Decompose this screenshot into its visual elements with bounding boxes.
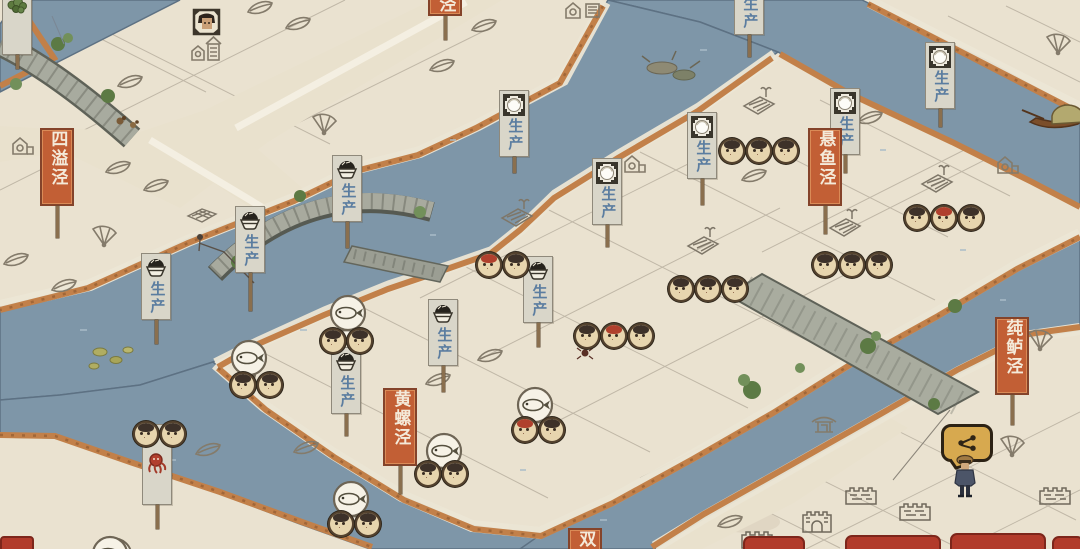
villager-coin-cluster [904, 205, 985, 231]
share-route-icon [957, 435, 977, 451]
villager-portrait-coin[interactable] [722, 276, 748, 302]
banner-pole [824, 206, 827, 234]
villager-coin-cluster [328, 511, 382, 537]
villager-portrait-coin[interactable] [719, 138, 745, 164]
production-label: 生产 [741, 0, 758, 30]
place-banner-label: 四溢泾 [48, 130, 67, 187]
villager-portrait-coin[interactable] [476, 252, 502, 278]
villager-coin-cluster [476, 252, 530, 278]
production-banner[interactable]: 生产 [331, 347, 361, 436]
silk-cocoon-icon [691, 116, 713, 138]
vegetable-banner[interactable] [2, 0, 32, 69]
banner-pole [1011, 395, 1014, 425]
place-banner-label: 悬鱼泾 [816, 130, 835, 187]
place-banner-partial-bottom[interactable]: 双 [568, 528, 602, 549]
production-banner[interactable]: 生产 [235, 206, 265, 311]
villager-portrait-coin[interactable] [442, 461, 468, 487]
villager-portrait-coin[interactable] [415, 461, 441, 487]
red-roof-partial [0, 536, 34, 549]
production-label: 生产 [242, 234, 259, 268]
food-bowl-icon [432, 303, 454, 325]
villager-portrait-coin[interactable] [539, 417, 565, 443]
villager-portrait-coin[interactable] [230, 372, 256, 398]
food-bowl-icon [335, 351, 357, 373]
production-label: 生产 [694, 140, 711, 174]
banner-pole [748, 35, 751, 57]
production-banner[interactable]: 生产 [428, 299, 458, 392]
production-label: 生产 [435, 327, 452, 361]
game-map: 四溢泾 悬鱼泾 黄螺泾 莼鲈泾 双 泾 生产 生产 生产 生产 生产 生产 生产… [0, 0, 1080, 549]
silk-cocoon-icon [929, 46, 951, 68]
food-bowl-icon [527, 260, 549, 282]
villager-coin-cluster [320, 328, 374, 354]
villager-portrait-coin[interactable] [866, 252, 892, 278]
banner-pole [844, 155, 847, 173]
banner-pole [156, 505, 159, 529]
villager-portrait-coin[interactable] [695, 276, 721, 302]
banner-pole [606, 225, 609, 247]
red-roof-partial [950, 533, 1046, 549]
villager-portrait-coin[interactable] [668, 276, 694, 302]
villager-portrait-coin[interactable] [320, 328, 346, 354]
production-banner[interactable]: 生产 [687, 112, 717, 205]
character-npc[interactable] [950, 452, 980, 502]
fish-marker[interactable] [90, 534, 130, 549]
production-label: 生产 [506, 118, 523, 152]
villager-coin-cluster [133, 421, 187, 447]
villager-portrait-coin[interactable] [812, 252, 838, 278]
production-label: 生产 [530, 284, 547, 318]
silk-cocoon-icon [596, 162, 618, 184]
red-roof-partial [1052, 536, 1080, 549]
villager-coin-cluster [668, 276, 749, 302]
octopus-icon [146, 452, 168, 476]
banner-pole [345, 414, 348, 436]
production-label: 生产 [339, 183, 356, 217]
production-label: 生产 [148, 281, 165, 315]
villager-portrait-coin[interactable] [133, 421, 159, 447]
production-label: 生产 [338, 375, 355, 409]
villager-portrait-coin[interactable] [958, 205, 984, 231]
vegetable-icon [6, 0, 28, 16]
place-banner-label: 黄螺泾 [391, 390, 410, 447]
villager-coin-cluster [415, 461, 469, 487]
food-bowl-icon [336, 159, 358, 181]
place-banner-huangluojing[interactable]: 黄螺泾 [383, 388, 417, 494]
villager-portrait-coin[interactable] [257, 372, 283, 398]
banner-pole [56, 206, 59, 238]
production-banner[interactable]: 生产 [592, 158, 622, 247]
place-banner-label: 双 [576, 530, 595, 549]
food-bowl-icon [145, 257, 167, 279]
red-roof-partial [845, 535, 941, 549]
villager-portrait-coin[interactable] [512, 417, 538, 443]
red-roof-partial [743, 536, 805, 549]
production-banner[interactable]: 生产 [499, 90, 529, 173]
villager-portrait-coin[interactable] [574, 323, 600, 349]
production-label: 生产 [599, 186, 616, 220]
banner-pole [513, 157, 516, 173]
production-banner[interactable]: 生产 [925, 42, 955, 127]
villager-portrait-coin[interactable] [355, 511, 381, 537]
production-banner-partial[interactable]: 生产 [734, 0, 764, 57]
villager-coin-cluster [719, 138, 800, 164]
place-banner-label: 莼鲈泾 [1003, 319, 1022, 376]
place-banner-siyijing[interactable]: 四溢泾 [40, 128, 74, 238]
place-banner-xuanyujing[interactable]: 悬鱼泾 [808, 128, 842, 234]
villager-coin-cluster [574, 323, 655, 349]
banner-pole [155, 320, 158, 344]
banner-pole [249, 273, 252, 311]
production-banner[interactable]: 生产 [141, 253, 171, 344]
villager-portrait-coin[interactable] [931, 205, 957, 231]
villager-portrait-coin[interactable] [773, 138, 799, 164]
banner-pole [537, 323, 540, 347]
silk-cocoon-icon [503, 94, 525, 116]
villager-portrait-coin[interactable] [746, 138, 772, 164]
villager-coin-cluster [512, 417, 566, 443]
production-label: 生产 [932, 70, 949, 104]
villager-portrait-coin[interactable] [328, 511, 354, 537]
villager-portrait-coin[interactable] [601, 323, 627, 349]
banner-pole [399, 466, 402, 494]
place-banner-partial-top[interactable]: 泾 [428, 0, 462, 40]
place-banner-label: 泾 [436, 0, 455, 14]
banner-pole [346, 222, 349, 248]
villager-coin-cluster [230, 372, 284, 398]
banner-pole [16, 55, 19, 69]
villager-portrait-coin[interactable] [347, 328, 373, 354]
silk-cocoon-icon [834, 92, 856, 114]
banner-pole [442, 366, 445, 392]
villager-coin-cluster [812, 252, 893, 278]
banner-pole [939, 109, 942, 127]
villager-portrait-coin[interactable] [628, 323, 654, 349]
food-bowl-icon [239, 210, 261, 232]
villager-portrait-coin[interactable] [904, 205, 930, 231]
villager-portrait-coin[interactable] [503, 252, 529, 278]
place-banner-chunlujing[interactable]: 莼鲈泾 [995, 317, 1029, 425]
banner-pole [444, 16, 447, 40]
quest-portrait-marker[interactable] [194, 10, 219, 34]
production-banner[interactable]: 生产 [332, 155, 362, 248]
villager-portrait-coin[interactable] [160, 421, 186, 447]
villager-portrait-coin[interactable] [839, 252, 865, 278]
banner-pole [701, 179, 704, 205]
